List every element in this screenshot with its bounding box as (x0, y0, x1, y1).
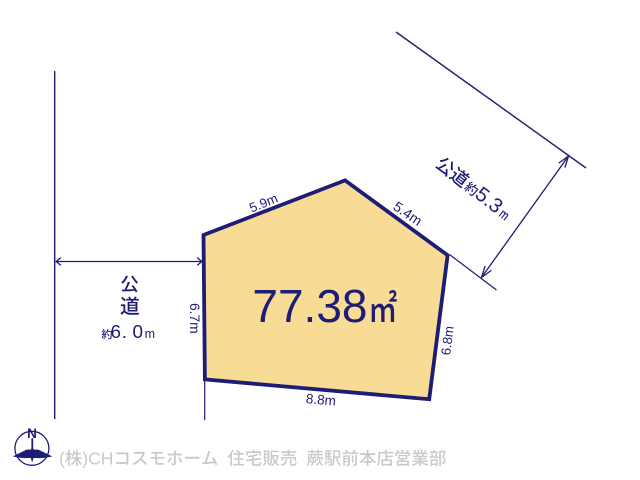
svg-text:(: ( (59, 449, 65, 469)
svg-text:77.38: 77.38 (252, 280, 367, 332)
svg-text:0: 0 (133, 322, 144, 343)
svg-text:)CH: )CH (82, 449, 113, 469)
svg-text:.: . (122, 322, 127, 343)
svg-text:8.8m: 8.8m (305, 391, 336, 409)
svg-text:m: m (145, 327, 155, 341)
svg-text:6: 6 (111, 322, 122, 343)
svg-text:6.8m: 6.8m (438, 325, 456, 356)
svg-text:6.7m: 6.7m (187, 303, 202, 334)
